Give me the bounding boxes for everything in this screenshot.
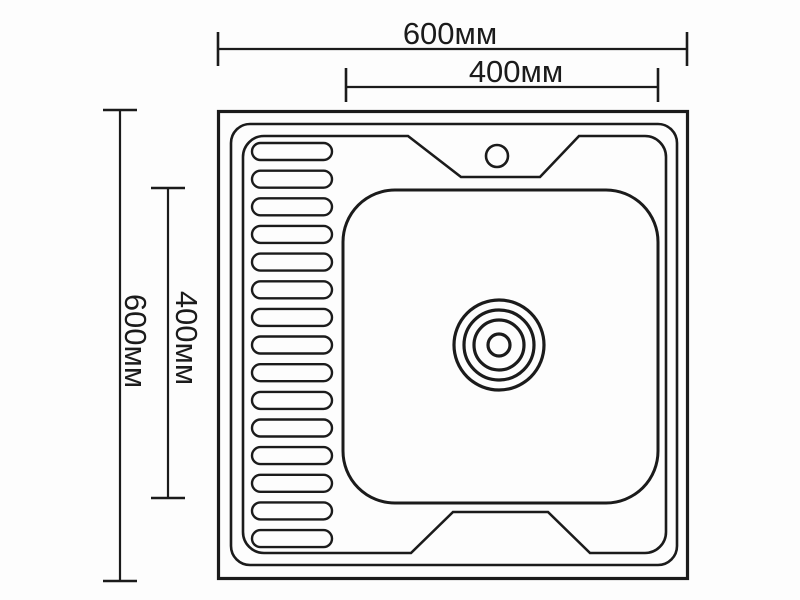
- drain-ring: [488, 334, 510, 356]
- drainboard-ridge: [252, 475, 332, 492]
- dimension-label-bowl-height: 400мм: [169, 291, 204, 385]
- drainboard-ridge: [252, 143, 332, 160]
- dimension-label-overall-height: 600мм: [118, 294, 153, 388]
- drain: [454, 300, 544, 390]
- drainboard-ridge: [252, 254, 332, 271]
- drainboard-ridge: [252, 392, 332, 409]
- drawing-svg: 600мм 400мм 600мм 400мм: [0, 0, 800, 600]
- drainboard-ridge: [252, 364, 332, 381]
- dimension-left-overall-height: 600мм: [103, 110, 153, 581]
- bowl-outline: [343, 190, 658, 503]
- drainboard-ridges: [252, 143, 332, 547]
- sink-technical-drawing: 600мм 400мм 600мм 400мм: [0, 0, 800, 600]
- drainboard-ridge: [252, 420, 332, 437]
- drainboard-ridge: [252, 502, 332, 519]
- drain-ring: [474, 320, 524, 370]
- dimension-label-overall-width: 600мм: [403, 16, 497, 51]
- drainboard-ridge: [252, 198, 332, 215]
- faucet-hole: [486, 145, 508, 167]
- dimension-top-overall-width: 600мм: [218, 16, 687, 66]
- dimension-left-bowl-height: 400мм: [151, 188, 204, 498]
- drainboard-ridge: [252, 447, 332, 464]
- drainboard-ridge: [252, 171, 332, 188]
- drain-ring: [454, 300, 544, 390]
- drainboard-ridge: [252, 309, 332, 326]
- drainboard-ridge: [252, 530, 332, 547]
- dimension-top-bowl-width: 400мм: [346, 54, 658, 102]
- drainboard-ridge: [252, 226, 332, 243]
- dimension-label-bowl-width: 400мм: [469, 54, 563, 89]
- drainboard-ridge: [252, 281, 332, 298]
- drainboard-ridge: [252, 337, 332, 354]
